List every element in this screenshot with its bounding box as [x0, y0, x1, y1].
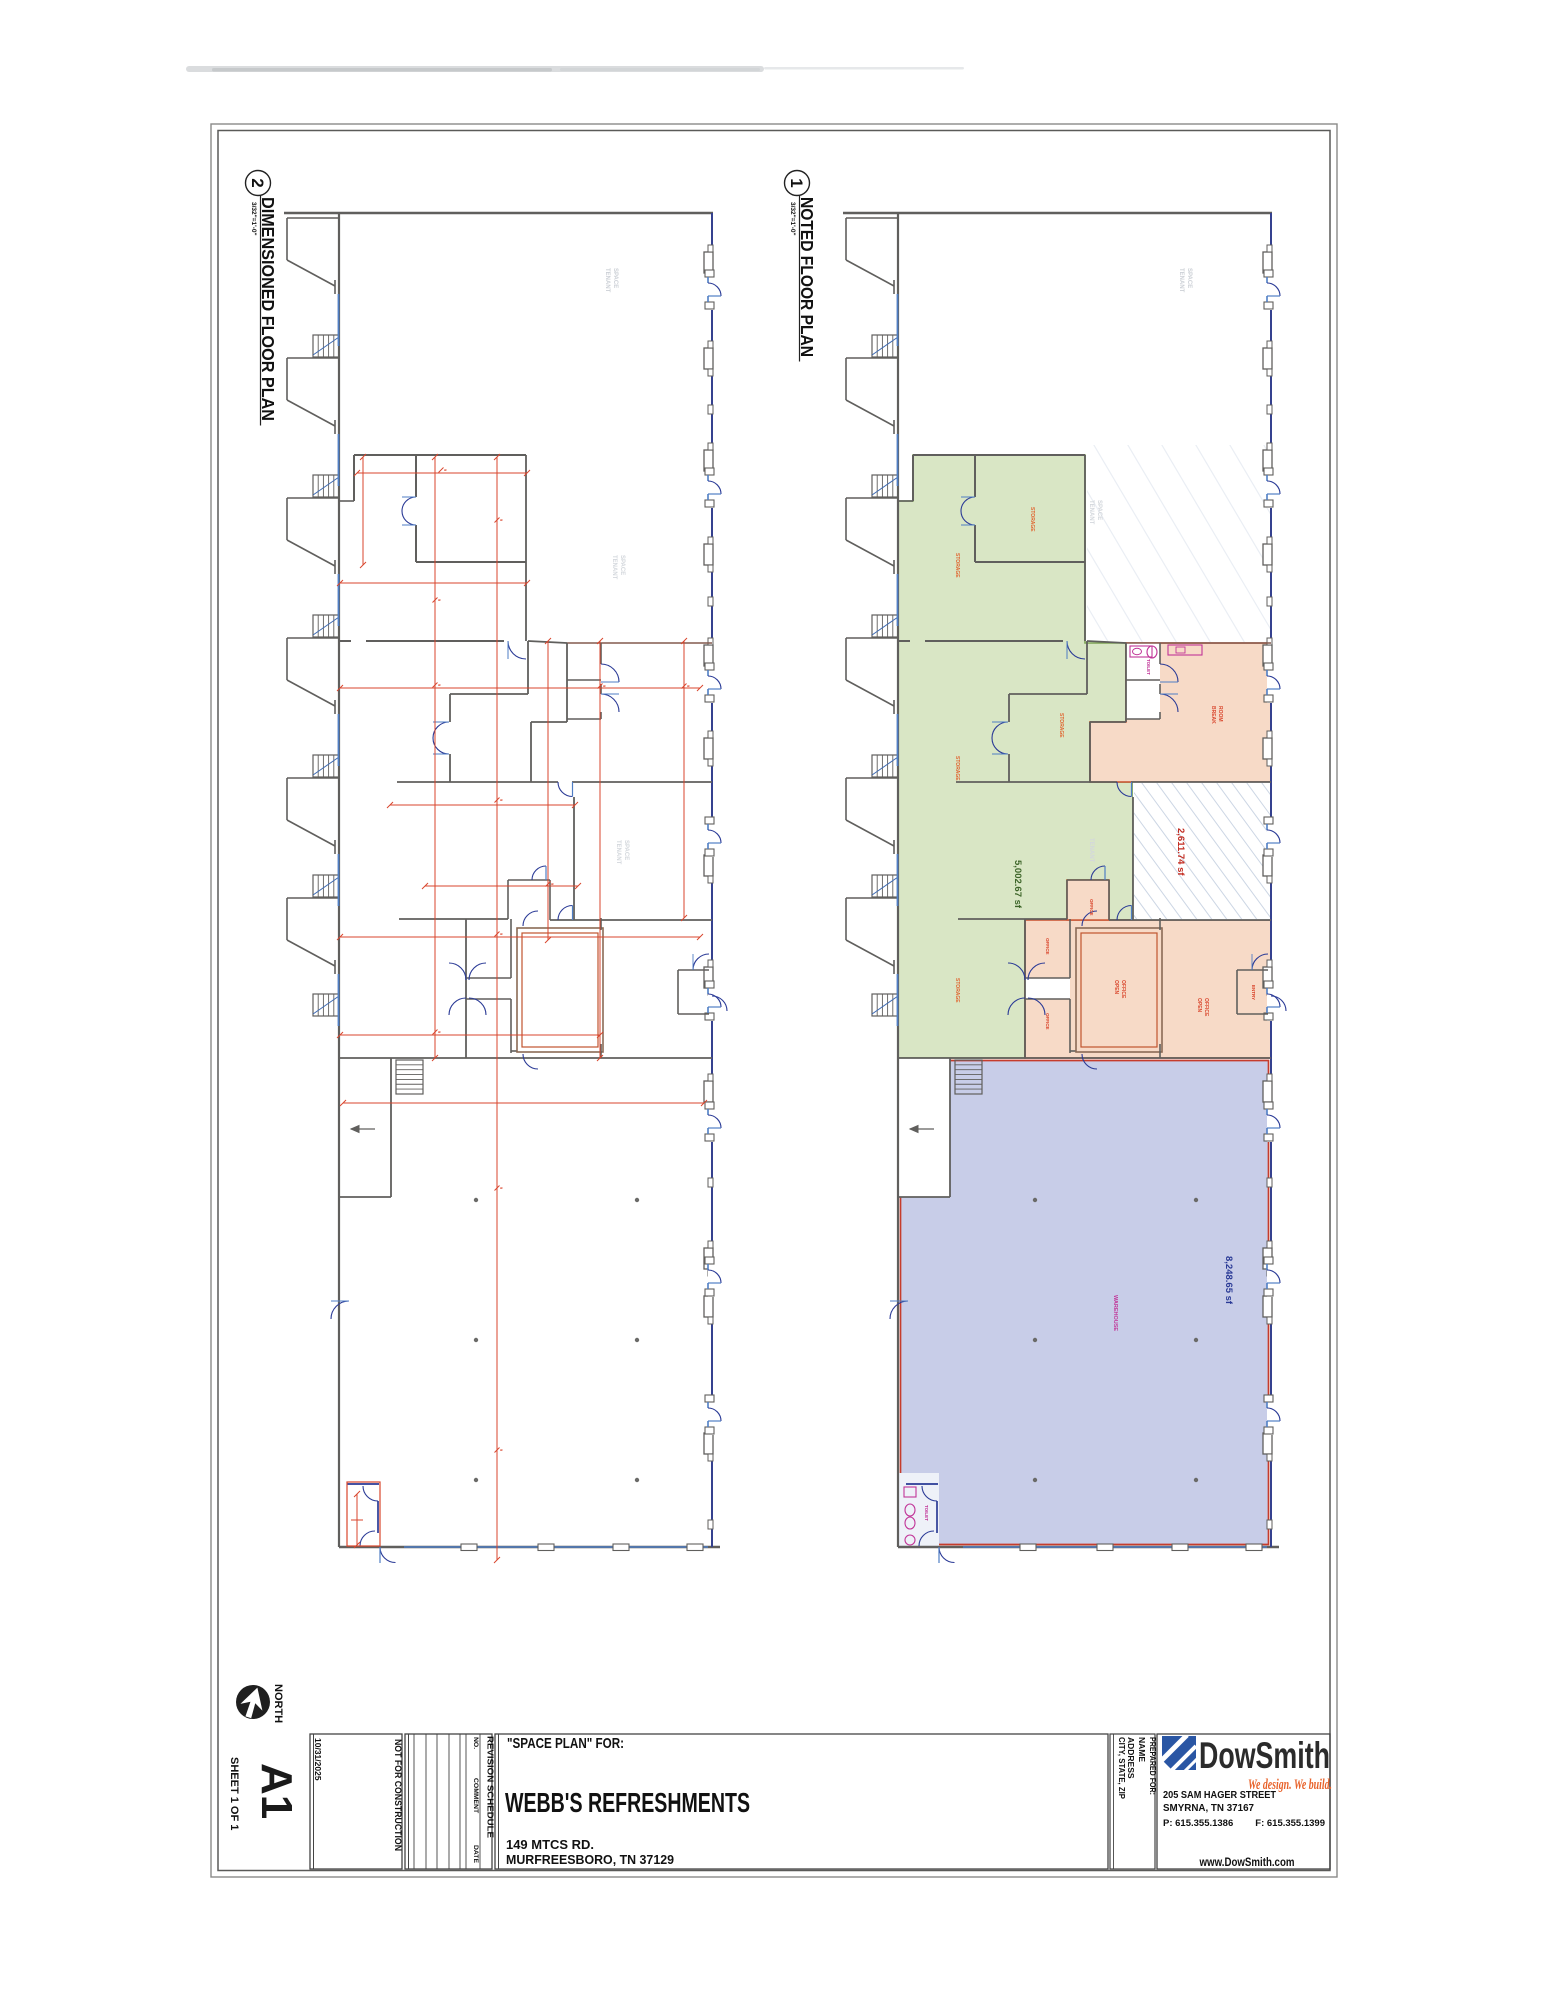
svg-text:9: 9 [443, 469, 447, 471]
svg-text:STORAGE: STORAGE [1029, 507, 1035, 532]
svg-text:10/31/2025: 10/31/2025 [313, 1738, 323, 1781]
svg-text:TENANT: TENANT [1088, 500, 1094, 525]
svg-text:TOILET: TOILET [924, 1505, 929, 1521]
svg-text:3/32"=1'-0": 3/32"=1'-0" [789, 202, 796, 236]
svg-text:OFFICE: OFFICE [1120, 980, 1126, 999]
svg-text:NORTH: NORTH [272, 1684, 284, 1723]
svg-text:SPACE: SPACE [612, 268, 618, 288]
svg-text:2,611.74 sf: 2,611.74 sf [1175, 828, 1186, 876]
svg-text:1: 1 [787, 178, 806, 187]
svg-text:DATE: DATE [472, 1845, 479, 1863]
svg-text:SHEET 1 OF 1: SHEET 1 OF 1 [228, 1757, 240, 1830]
svg-text:9: 9 [602, 685, 606, 687]
svg-text:STORAGE: STORAGE [954, 553, 960, 578]
svg-text:OPEN: OPEN [1196, 998, 1202, 1013]
svg-text:149 MTCS RD.: 149 MTCS RD. [506, 1838, 594, 1852]
svg-text:BREAK: BREAK [1210, 706, 1216, 724]
svg-text:9: 9 [437, 599, 441, 601]
svg-text:STORAGE: STORAGE [954, 978, 960, 1003]
svg-text:OFFICE: OFFICE [1045, 1013, 1050, 1030]
svg-text:SPACE: SPACE [623, 840, 629, 860]
svg-text:NAME: NAME [1137, 1737, 1147, 1762]
svg-text:9: 9 [550, 883, 554, 885]
svg-text:A1: A1 [252, 1763, 301, 1819]
svg-text:P: 615.355.1386: P: 615.355.1386 [1163, 1818, 1233, 1829]
svg-text:9: 9 [499, 799, 503, 801]
svg-text:ENTRY: ENTRY [1251, 985, 1256, 1000]
svg-text:DowSmith: DowSmith [1199, 1735, 1330, 1776]
svg-text:COMMENT: COMMENT [472, 1778, 479, 1814]
svg-text:DIMENSIONED FLOOR PLAN: DIMENSIONED FLOOR PLAN [258, 197, 278, 421]
svg-text:CITY, STATE, ZIP: CITY, STATE, ZIP [1117, 1737, 1127, 1799]
svg-text:9: 9 [686, 685, 690, 687]
svg-text:OFFICE: OFFICE [1089, 899, 1094, 916]
svg-text:OPEN: OPEN [1113, 980, 1119, 995]
svg-text:TENANT: TENANT [1088, 838, 1094, 863]
svg-text:NOT FOR CONSTRUCTION: NOT FOR CONSTRUCTION [393, 1739, 403, 1851]
svg-text:9: 9 [437, 684, 441, 686]
svg-text:"SPACE PLAN" FOR:: "SPACE PLAN" FOR: [507, 1735, 624, 1752]
svg-text:SPACE: SPACE [619, 555, 625, 575]
svg-text:NOTED FLOOR PLAN: NOTED FLOOR PLAN [797, 197, 817, 357]
svg-text:9: 9 [499, 1187, 503, 1189]
svg-text:9: 9 [499, 519, 503, 521]
svg-text:STORAGE: STORAGE [1058, 713, 1064, 738]
svg-text:MURFREESBORO, TN 37129: MURFREESBORO, TN 37129 [506, 1853, 674, 1867]
svg-text:WAREHOUSE: WAREHOUSE [1112, 1295, 1118, 1331]
svg-text:NO.: NO. [472, 1737, 479, 1749]
svg-text:REVISION SCHEDULE: REVISION SCHEDULE [486, 1736, 495, 1839]
svg-text:SMYRNA, TN 37167: SMYRNA, TN 37167 [1163, 1802, 1254, 1814]
svg-text:TENANT: TENANT [611, 555, 617, 580]
svg-text:TOILET: TOILET [1146, 659, 1151, 675]
svg-text:STORAGE: STORAGE [954, 756, 960, 781]
svg-text:9: 9 [437, 1031, 441, 1033]
svg-text:www.DowSmith.com: www.DowSmith.com [1199, 1855, 1295, 1869]
svg-text:OFFICE: OFFICE [1045, 938, 1050, 955]
svg-text:OFFICE: OFFICE [1203, 998, 1209, 1017]
svg-text:SPACE: SPACE [1186, 268, 1192, 288]
svg-text:2: 2 [248, 178, 267, 187]
svg-text:205 SAM HAGER STREET: 205 SAM HAGER STREET [1163, 1789, 1277, 1801]
svg-text:9: 9 [499, 1449, 503, 1451]
svg-text:TENANT: TENANT [615, 840, 621, 865]
svg-text:TENANT: TENANT [1178, 268, 1184, 293]
svg-text:ROOM: ROOM [1217, 706, 1223, 722]
svg-text:F: 615.355.1399: F: 615.355.1399 [1255, 1818, 1325, 1829]
svg-text:SPACE: SPACE [1096, 500, 1102, 520]
svg-text:TENANT: TENANT [604, 268, 610, 293]
svg-text:3/32"=1'-0": 3/32"=1'-0" [250, 202, 257, 236]
svg-text:8,248.65 sf: 8,248.65 sf [1223, 1256, 1234, 1305]
svg-text:WEBB'S REFRESHMENTS: WEBB'S REFRESHMENTS [505, 1787, 750, 1818]
svg-text:5,002.67 sf: 5,002.67 sf [1012, 860, 1023, 909]
svg-text:9: 9 [499, 933, 503, 935]
